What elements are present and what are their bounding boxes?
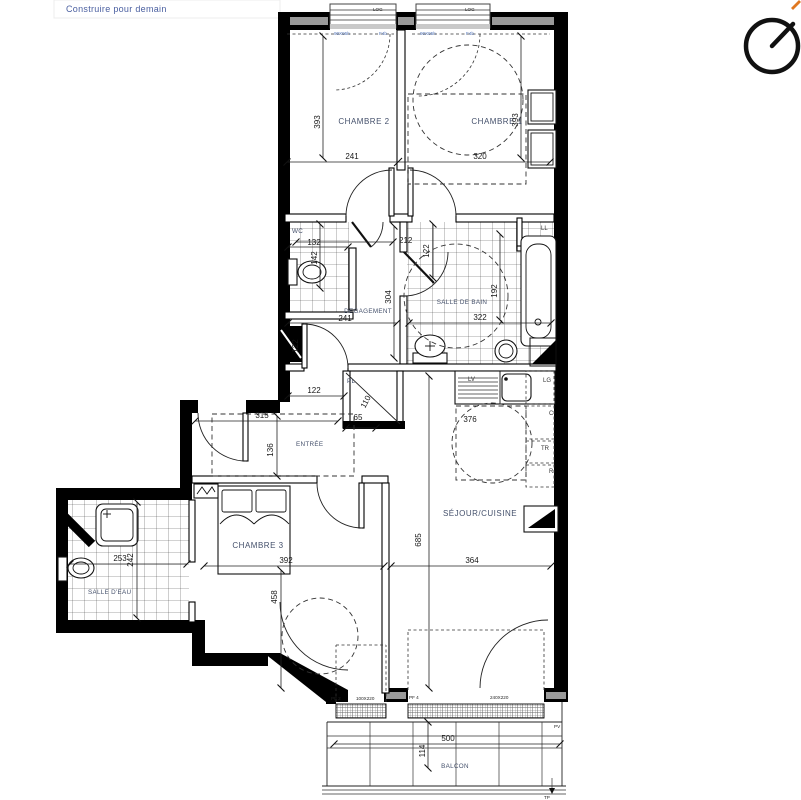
room-label-entree: ENTRÉE xyxy=(296,439,323,448)
window-note-size: 90X95h xyxy=(420,31,436,36)
radiator-sejour xyxy=(524,506,558,532)
wall-hall-south-b xyxy=(348,364,556,371)
dim-bathroom-width: 322 xyxy=(473,313,487,322)
dim-degagement-passage: 212 xyxy=(399,236,413,245)
pf2-size: 100X220 xyxy=(356,696,375,701)
dim-placard-width: 65 xyxy=(354,413,363,422)
room-label-chambre2: CHAMBRE 2 xyxy=(338,117,389,126)
electrical-panel xyxy=(194,484,218,498)
wardrobe-upper xyxy=(528,90,556,124)
door-swing-arc xyxy=(198,413,246,461)
wall-shower-room-top xyxy=(56,488,192,500)
window-note-size: 90X95h xyxy=(334,31,350,36)
appliance-label-lg: LG xyxy=(543,378,551,384)
shower xyxy=(96,504,138,546)
door-leaf xyxy=(389,168,394,216)
wall-shower-room-right-b xyxy=(189,602,195,622)
window-note-type: F4b xyxy=(379,31,387,36)
kitchen-faucet xyxy=(504,377,508,381)
wall-chambre3-right xyxy=(382,483,389,693)
appliance-label-r: R xyxy=(549,469,554,475)
window-sill xyxy=(330,24,396,29)
door-swing-arc xyxy=(371,222,383,247)
turning-circle-chambre3 xyxy=(282,598,358,674)
door-chambre3 xyxy=(317,483,364,528)
dim-bathroom-depth: 192 xyxy=(490,284,499,298)
room-label-salle-deau: SALLE D'EAU xyxy=(88,589,132,596)
door-leaf xyxy=(359,483,364,528)
room-label-placard: PL xyxy=(347,378,355,385)
window-chambre2: LOG xyxy=(330,4,396,29)
dim-sejour-width: 364 xyxy=(465,556,479,565)
dim-balcony-depth: 114 xyxy=(418,744,427,757)
pf2-tag: PF 2 xyxy=(331,696,341,701)
wall-shower-room-bottom xyxy=(56,620,204,633)
window-pf4 xyxy=(408,704,544,718)
window-swing-arc xyxy=(418,34,480,96)
window-chambre1: LOG xyxy=(416,4,490,29)
door-hall-to-entree xyxy=(302,324,348,368)
wall-entree-south-a xyxy=(192,476,317,483)
floor-plan: Construire pour demain xyxy=(0,0,801,800)
dim-wc-width: 132 xyxy=(307,238,321,247)
wall-left-mid xyxy=(180,400,192,490)
north-accent-mark xyxy=(791,0,801,10)
door-leaf xyxy=(352,222,371,247)
wall-bottom-pier-right-core xyxy=(546,692,566,699)
bed-ghost-chambre1 xyxy=(408,94,526,184)
dim-chambre1-width: 320 xyxy=(473,152,487,161)
wall-bedrooms-south-a xyxy=(285,214,346,222)
wardrobe-chambre1 xyxy=(528,90,556,168)
window-swing-arc xyxy=(334,34,390,90)
basin-rim xyxy=(495,340,517,362)
washbasin-bathroom xyxy=(495,340,517,362)
toilet-tank xyxy=(58,557,67,581)
dim-shower-room-depth: 242 xyxy=(126,553,135,567)
wall-step-horizontal xyxy=(192,653,268,666)
brand-header: Construire pour demain xyxy=(54,0,280,18)
north-arrow-icon xyxy=(746,0,801,72)
turning-circle-chambre1 xyxy=(413,45,523,155)
room-label-balcon: BALCON xyxy=(441,763,469,770)
dim-entree-depth: 136 xyxy=(266,443,275,457)
balcony-and-bottom-windows: PF 2 100X220 PF 4 240X220 PV TP xyxy=(322,695,566,800)
window-tag: LOG xyxy=(373,7,383,12)
toilet-bathroom xyxy=(413,335,447,363)
window-sill xyxy=(416,24,490,29)
wall-bedroom-divider xyxy=(397,30,405,170)
wall-wc-right xyxy=(349,248,356,310)
dim-chambre3-height: 458 xyxy=(270,590,279,604)
window-note-type: F4b xyxy=(466,31,474,36)
dim-sejour-height: 685 xyxy=(414,533,423,547)
bathtub xyxy=(521,236,556,346)
door-leaf xyxy=(408,168,413,216)
room-label-sejour: SÉJOUR/CUISINE xyxy=(443,509,517,518)
appliance-label-tr: TR xyxy=(541,446,550,452)
room-label-chambre3: CHAMBRE 3 xyxy=(232,541,283,550)
wall-shower-room-right-a xyxy=(189,500,195,562)
wall-hall-south-a xyxy=(285,364,304,371)
washer-label: LL xyxy=(541,226,548,232)
door-leaf xyxy=(302,324,307,368)
door-leaf xyxy=(243,413,248,461)
tp-label: TP xyxy=(544,795,550,800)
door-chambre2 xyxy=(346,168,394,216)
toilet-tank xyxy=(288,259,297,285)
entree-zone-ghost xyxy=(212,414,354,476)
dim-degagement-bottom: 122 xyxy=(307,386,321,395)
pv-label: PV xyxy=(554,724,561,729)
door-front-entrance xyxy=(198,413,248,461)
dim-chambre1-height: 393 xyxy=(511,113,520,127)
door-wc xyxy=(352,222,383,247)
kitchen-counter xyxy=(455,371,555,404)
wall-bathroom-left-b xyxy=(400,296,407,364)
wall-top-mid-core xyxy=(398,17,414,25)
labels: CHAMBRE 2 241 393 CHAMBRE 1 320 393 WC 1… xyxy=(88,113,554,770)
dim-entree-width: 315 xyxy=(255,411,269,420)
door-swing-arc xyxy=(317,483,362,528)
floor-plan-page: Construire pour demain xyxy=(0,0,801,800)
dim-degagement-left: 122 xyxy=(291,339,300,353)
brand-tagline: Construire pour demain xyxy=(66,4,167,14)
dim-degagement-door: 122 xyxy=(422,244,431,258)
compass-needle xyxy=(772,24,793,46)
dim-sejour-kitchen: 376 xyxy=(463,415,477,424)
dim-balcony-width: 500 xyxy=(441,734,455,743)
wall-bedrooms-south-c xyxy=(456,214,554,222)
dishwasher-label: LV xyxy=(468,377,475,383)
appliance-label-c: C xyxy=(549,411,554,417)
door-swing-arc xyxy=(410,170,456,216)
door-swing-arc xyxy=(304,324,348,368)
pf4-tag: PF 4 xyxy=(409,695,419,700)
wall-entree-south-b xyxy=(362,476,388,483)
door-swing-arc xyxy=(346,170,392,216)
wall-closet-right xyxy=(397,371,403,428)
toilet-bowl xyxy=(68,558,94,578)
dim-chambre3-width: 392 xyxy=(279,556,293,565)
dim-wc-depth: 142 xyxy=(310,251,319,265)
window-pf2 xyxy=(336,704,386,718)
appliance-slot-tr xyxy=(526,441,554,463)
pf4-size: 240X220 xyxy=(490,695,509,700)
room-label-wc: WC xyxy=(292,228,303,235)
door-chambre1 xyxy=(408,168,456,216)
dim-chambre2-width: 241 xyxy=(345,152,359,161)
window-tag: LOG xyxy=(465,7,475,12)
pf4-swing-ghost xyxy=(408,630,544,690)
dim-degagement-height: 304 xyxy=(384,290,393,304)
room-label-salle-de-bain: SALLE DE BAIN xyxy=(437,299,488,306)
dim-degagement-width: 241 xyxy=(338,314,352,323)
tp-arrow-icon xyxy=(549,788,555,794)
dim-chambre2-height: 393 xyxy=(313,115,322,129)
